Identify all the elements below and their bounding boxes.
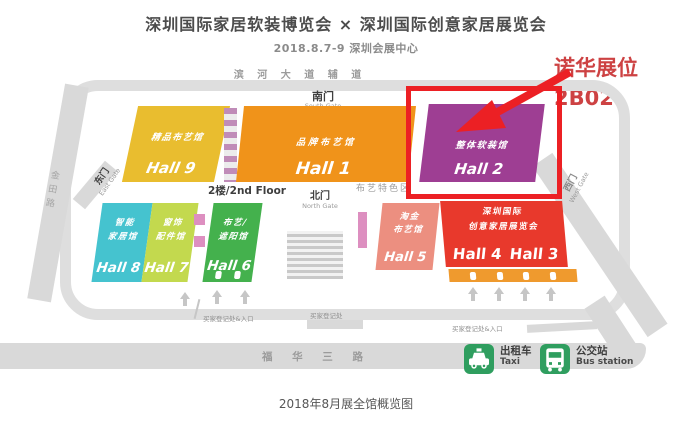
entry-door [523, 272, 530, 280]
hall-8-name-line2: 家居馆 [97, 231, 149, 245]
hall-8-label: Hall 8 [92, 260, 144, 276]
hall-1-name: 品牌布艺馆 [240, 135, 413, 148]
hall-5-name-line1: 淘金 [380, 211, 438, 225]
hall-6-door [215, 271, 222, 279]
hall-5-label: Hall 5 [376, 250, 435, 265]
bus-label-zh: 公交站 [576, 345, 633, 357]
hall-7-name-line1: 窗饰 [149, 217, 197, 231]
bus-label: 公交站 Bus station [576, 345, 633, 367]
page-title: 深圳国际家居软装博览会 × 深圳国际创意家居展览会 [0, 11, 692, 35]
taxi-glyph [464, 344, 494, 374]
connector-hall5 [358, 212, 367, 248]
hall-6-name-line2: 遮阳馆 [208, 231, 259, 245]
south-gate-zh: 南门 [312, 90, 334, 103]
entrance-arrow [180, 292, 190, 306]
hall-8-name-line1: 智能 [99, 217, 151, 231]
entry-door [469, 272, 476, 280]
entry-strip [448, 269, 577, 282]
entrance-arrow [212, 290, 222, 304]
entrance-arrow [494, 287, 504, 301]
taxi-label: 出租车 Taxi [500, 345, 532, 367]
taxi-label-en: Taxi [500, 357, 532, 367]
bus-icon [540, 344, 570, 374]
bus-label-en: Bus station [576, 357, 633, 367]
taxi-label-zh: 出租车 [500, 345, 532, 357]
connector-hall7-hall6-a [194, 214, 205, 225]
hall-9: 精品布艺馆 Hall 9 [122, 106, 230, 182]
hall-1: 品牌布艺馆 Hall 1 [236, 106, 416, 182]
connector-hall7-hall6-b [194, 236, 205, 247]
hall-6-name-line1: 布艺/ [210, 217, 261, 231]
entry-door [496, 272, 503, 280]
hall-7-name-line2: 配件馆 [147, 231, 195, 245]
registration-right-label: 买家登记处&入口 [452, 323, 503, 333]
registration-center-label: 买家登记处 [310, 310, 343, 320]
north-gate-label: 北门 North Gate [292, 191, 348, 211]
hall-7-label: Hall 7 [142, 260, 190, 276]
hall-6-label: Hall 6 [204, 258, 255, 274]
hall-5-name-line2: 布艺馆 [379, 224, 437, 238]
hall-4-3-name-line1: 深圳国际 [441, 206, 564, 220]
entrance-arrow [546, 287, 556, 301]
hall-9-label: Hall 9 [123, 159, 219, 177]
bus-glyph [540, 344, 570, 374]
hall-6-door [234, 271, 241, 279]
taxi-icon [464, 344, 494, 374]
stairs-area [287, 231, 343, 279]
registration-right-desk [527, 321, 597, 333]
hall-4-3: 深圳国际 创意家居展览会 Hall 4 Hall 3 [440, 201, 568, 267]
north-gate-zh: 北门 [310, 191, 330, 202]
connector-hall9-hall1 [224, 108, 237, 182]
registration-center-desk [307, 320, 363, 329]
booth-highlight-arrow [442, 56, 577, 144]
hall-4-label: Hall 4 [452, 245, 502, 263]
second-floor-label: 2楼/2nd Floor [208, 183, 286, 198]
map-caption: 2018年8月展全馆概览图 [0, 395, 692, 412]
fabric-area-label: 布艺特色区 [356, 181, 411, 194]
exhibition-map-page: 深圳国际家居软装博览会 × 深圳国际创意家居展览会 2018.8.7-9 深圳会… [0, 0, 692, 426]
hall-5: 淘金 布艺馆 Hall 5 [375, 203, 439, 270]
entry-door [550, 272, 557, 280]
hall-9-name: 精品布艺馆 [130, 130, 225, 143]
hall-1-label: Hall 1 [236, 159, 410, 179]
road-label-fuhua: 福 华 三 路 [262, 349, 371, 364]
entrance-arrow [520, 287, 530, 301]
entrance-arrow [468, 287, 478, 301]
entrance-arrow [240, 290, 250, 304]
hall-3-label: Hall 3 [509, 245, 559, 263]
hall-4-3-name-line2: 创意家居展览会 [442, 221, 565, 235]
road-label-binhe-avenue: 滨 河 大 道 辅 道 [170, 66, 430, 81]
north-gate-en: North Gate [292, 203, 348, 211]
registration-left-label: 买家登记处&入口 [203, 313, 254, 323]
